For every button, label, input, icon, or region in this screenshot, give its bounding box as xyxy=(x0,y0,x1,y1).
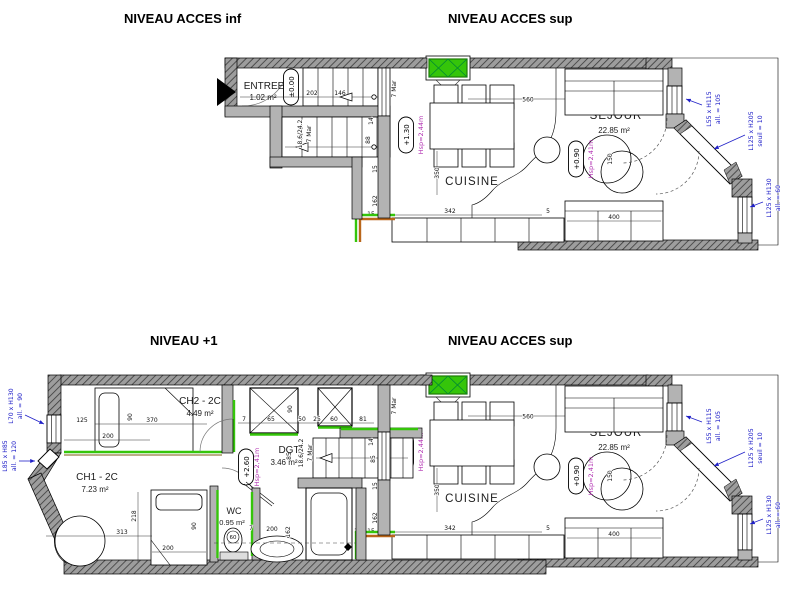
title-niveau-acces-inf: NIVEAU ACCES inf xyxy=(124,11,242,26)
title-niveau-acces-sup-bottom: NIVEAU ACCES sup xyxy=(448,333,573,348)
window-annotation-l70: L70 x H130 all. = 90 xyxy=(8,388,44,424)
svg-text:all. = 120: all. = 120 xyxy=(11,441,18,471)
svg-text:L70 x H130: L70 x H130 xyxy=(8,388,15,423)
dim-90b: 90 xyxy=(191,522,198,530)
floor-plan-canvas: 18.6/24.2 7 Mar 15 162 16 15 560 350 342… xyxy=(0,0,800,591)
exterior-wall-top xyxy=(60,375,432,385)
stair-upper-run xyxy=(303,68,378,106)
stair-note-steps: 7 Mar xyxy=(306,125,313,143)
bed-ch1 xyxy=(151,490,207,565)
room-area-dgt: 3.46 m² xyxy=(270,458,297,467)
title-niveau-plus-1: NIVEAU +1 xyxy=(150,333,218,348)
exterior-wall-top xyxy=(225,58,427,68)
dim-90: 90 xyxy=(127,413,134,421)
svg-text:+2.60: +2.60 xyxy=(243,456,251,477)
room-label-entree: ENTREE xyxy=(244,81,285,92)
level-marker-260: +2.60 xyxy=(239,449,254,485)
room-area-entree: 1.02 m² xyxy=(249,93,276,102)
room-label-dgt: DGT xyxy=(278,445,299,456)
dim-81: 81 xyxy=(359,416,367,423)
dim-200b: 200 xyxy=(162,545,174,552)
washbasin xyxy=(251,536,303,562)
room-label-ch1: CH1 - 2C xyxy=(76,472,118,483)
stair-note-ratio: 18.6/24.2 xyxy=(298,438,305,467)
dim-90c: 90 xyxy=(287,405,294,413)
dim-60: 60 xyxy=(330,416,338,423)
room-area-ch1: 7.23 m² xyxy=(81,485,108,494)
stairwell-window xyxy=(378,432,390,480)
dim-14: 14 xyxy=(368,117,375,125)
chair-ch1 xyxy=(54,516,105,566)
stair-note-ratio: 18.6/24.2 xyxy=(297,119,304,148)
dim-7b: 7 xyxy=(249,525,253,532)
svg-text:all. = 90: all. = 90 xyxy=(17,393,24,419)
plan-niveau-plus-1: CH2 - 2C 4.49 m² 370 125 90 200 CH1 - 2C… xyxy=(2,373,782,574)
level-marker-000: ±0.00 xyxy=(284,69,299,105)
dim-218: 218 xyxy=(131,510,138,522)
toilet: 60 xyxy=(220,528,248,560)
dim-370: 370 xyxy=(146,417,158,424)
dim-202: 202 xyxy=(306,90,318,97)
dim-50: 50 xyxy=(298,416,306,423)
title-niveau-acces-sup-top: NIVEAU ACCES sup xyxy=(448,11,573,26)
window-annotation-l85: L85 x H85 all. = 120 xyxy=(2,440,35,472)
dim-162b: 162 xyxy=(285,526,292,538)
ceiling-height-241b: Hsp=2,41m xyxy=(253,448,261,487)
room-label-ch2: CH2 - 2C xyxy=(179,396,221,407)
dim-25: 25 xyxy=(313,416,321,423)
dim-200: 200 xyxy=(102,433,114,440)
stair-note-steps: 7 Mar xyxy=(307,444,314,462)
exterior-wall-bottom xyxy=(64,560,546,574)
dim-88: 88 xyxy=(365,136,372,144)
window-l70 xyxy=(47,415,61,443)
dim-200c: 200 xyxy=(266,526,278,533)
dim-14b: 14 xyxy=(368,438,375,446)
dim-60-toilet: 60 xyxy=(230,535,237,541)
plan-niveau-acces: ENTREE 1.02 m² ±0.00 202 146 18.6/24.2 7… xyxy=(217,56,782,250)
dim-65: 65 xyxy=(267,416,275,423)
room-area-wc: 0.95 m² xyxy=(219,518,245,527)
dim-85b: 85 xyxy=(370,455,377,463)
floor-plan-drawing: 18.6/24.2 7 Mar 15 162 16 15 560 350 342… xyxy=(0,0,800,591)
stairwell-window xyxy=(378,68,390,116)
room-area-ch2: 4.49 m² xyxy=(186,409,213,418)
svg-text:±0.00: ±0.00 xyxy=(288,76,296,97)
room-label-wc: WC xyxy=(227,506,242,516)
bathtub xyxy=(306,488,352,560)
dim-7: 7 xyxy=(242,416,246,423)
dim-313: 313 xyxy=(116,529,128,536)
svg-text:L85 x H85: L85 x H85 xyxy=(2,440,9,472)
dim-125: 125 xyxy=(76,417,88,424)
